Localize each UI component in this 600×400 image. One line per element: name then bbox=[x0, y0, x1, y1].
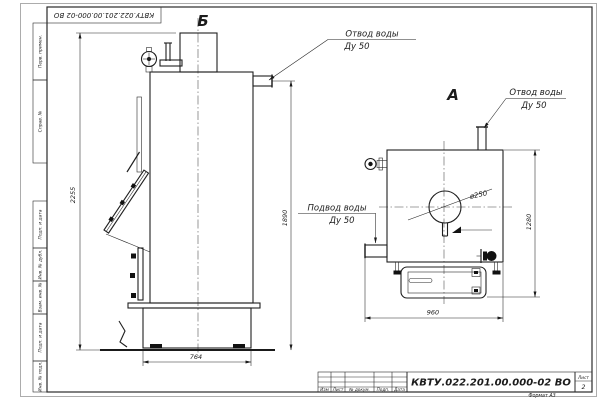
pipe-elbow bbox=[160, 43, 182, 66]
dim-overall-height: 2255 bbox=[69, 187, 77, 204]
view-label-top: А bbox=[446, 86, 459, 104]
outlet-top-line1: Отвод воды bbox=[509, 88, 563, 98]
foot-right bbox=[233, 344, 245, 349]
top-left-stamp: КВТУ.022.201.00.000-02 ВО bbox=[47, 7, 161, 23]
sheet-frame bbox=[21, 4, 597, 397]
boiler-plan-body bbox=[387, 150, 503, 262]
door-handle bbox=[409, 279, 432, 283]
outlet-top-line2: Ду 50 bbox=[520, 101, 546, 111]
safety-valve bbox=[142, 48, 157, 73]
outlet-side-line2: Ду 50 bbox=[343, 42, 369, 52]
dimensions: 2255 1890 764 960 1280 bbox=[69, 33, 540, 366]
dim-plan-width: 960 bbox=[427, 309, 439, 317]
margin-stamp-perv-primen: Перв. примен. bbox=[38, 35, 44, 68]
tb-sheet-label: Лист bbox=[577, 375, 589, 381]
top-view bbox=[365, 127, 512, 304]
weld-arrow bbox=[452, 227, 461, 234]
sheet-format: Формат А3 bbox=[528, 393, 555, 399]
plan-door bbox=[401, 267, 486, 298]
margin-stamp-column: Перв. примен. Справ. № Подп. и дата Инв.… bbox=[33, 23, 47, 392]
outer-border bbox=[21, 4, 597, 397]
inlet-line2: Ду 50 bbox=[328, 216, 354, 226]
ash-lever bbox=[119, 321, 127, 347]
callout-outlet-top: Отвод воды Ду 50 bbox=[484, 88, 566, 128]
callout-outlet-side: Отвод воды Ду 50 bbox=[269, 30, 416, 81]
chimney-diameter-label: ø250 bbox=[468, 189, 488, 201]
lower-door bbox=[130, 248, 143, 300]
view-label-front: Б bbox=[197, 12, 208, 30]
base-flange bbox=[128, 303, 260, 308]
top-stamp-doc-number: КВТУ.022.201.00.000-02 ВО bbox=[53, 11, 154, 19]
margin-stamp-podp-data-2: Подп. и дата bbox=[38, 322, 44, 352]
open-door bbox=[102, 169, 148, 233]
dim-outlet-height: 1890 bbox=[281, 210, 289, 227]
foot-left bbox=[150, 344, 162, 349]
margin-stamp-vzam-inv: Взам. инв. № bbox=[38, 282, 44, 312]
chimney bbox=[180, 33, 217, 72]
side-view bbox=[100, 18, 275, 356]
base-pedestal bbox=[143, 308, 251, 348]
tb-col-data: Дата bbox=[393, 387, 405, 392]
chimney-stub bbox=[443, 223, 493, 236]
door-lever bbox=[127, 152, 140, 172]
boiler-body bbox=[150, 72, 253, 303]
upper-door-frame bbox=[137, 97, 142, 172]
dim-base-width: 764 bbox=[190, 353, 202, 361]
tb-doc-number: КВТУ.022.201.00.000-02 ВО bbox=[411, 378, 571, 389]
inlet-pipe bbox=[365, 244, 387, 259]
plan-gauge bbox=[365, 158, 387, 170]
margin-stamp-podp-data-1: Подп. и дата bbox=[38, 209, 44, 239]
inlet-line1: Подвод воды bbox=[307, 204, 366, 214]
margin-stamp-sprav-n: Справ. № bbox=[38, 110, 44, 132]
tb-col-podp: Подп. bbox=[377, 387, 390, 392]
fan-motor bbox=[477, 249, 497, 263]
callout-inlet: Подвод воды Ду 50 bbox=[298, 204, 376, 244]
tb-sheet-number: 2 bbox=[582, 384, 586, 391]
drawing-canvas: КВТУ.022.201.00.000-02 ВО Перв. примен. … bbox=[0, 0, 600, 400]
outlet-pipe-side bbox=[253, 75, 272, 88]
outlet-pipe-top bbox=[476, 127, 488, 150]
tb-col-dokum: № докум. bbox=[348, 387, 370, 392]
dim-plan-depth: 1280 bbox=[525, 214, 533, 231]
title-block: Изм Лист № докум. Подп. Дата КВТУ.022.20… bbox=[318, 372, 592, 399]
inner-frame bbox=[47, 7, 592, 392]
tb-col-list: Лист bbox=[332, 387, 344, 392]
margin-stamp-inv-dubl: Инв. № дубл. bbox=[38, 249, 44, 279]
tb-col-izm: Изм bbox=[320, 387, 329, 392]
outlet-side-line1: Отвод воды bbox=[345, 30, 399, 40]
margin-stamp-inv-podl: Инв. № подл. bbox=[38, 361, 44, 391]
drawing-sheet: КВТУ.022.201.00.000-02 ВО Перв. примен. … bbox=[0, 0, 600, 400]
